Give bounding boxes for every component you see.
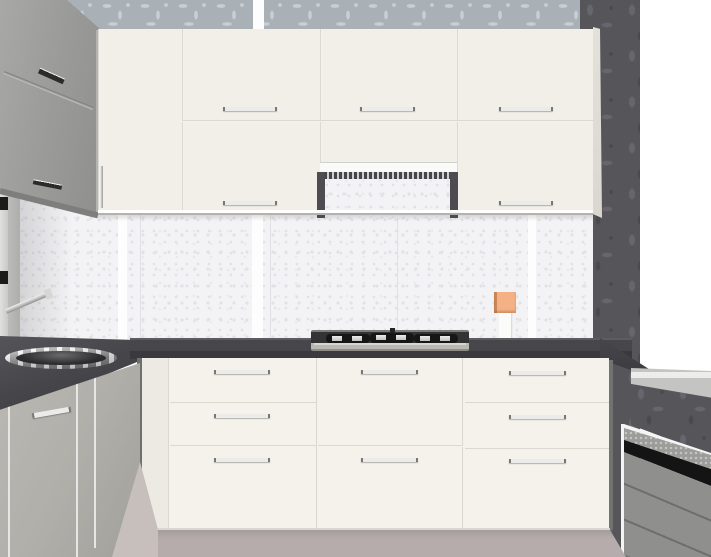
drawer-divider (318, 445, 463, 447)
sink-basin (16, 351, 106, 365)
tile-joint (252, 215, 263, 341)
upper-door-divider (182, 120, 593, 122)
burner-cap (332, 336, 342, 341)
burner-cap (440, 336, 450, 341)
hinge (0, 271, 8, 284)
tile-joint (528, 215, 536, 341)
upper-door-handle[interactable] (499, 107, 553, 111)
drawer-handle[interactable] (214, 370, 270, 374)
kitchen-3d-viewport[interactable] (0, 0, 711, 557)
base-unit-gap (316, 358, 318, 530)
drawer-handle[interactable] (509, 459, 566, 463)
burner-cap (376, 335, 386, 340)
base-unit-b[interactable] (316, 358, 463, 530)
burner-cap (396, 335, 406, 340)
upper-door-handle[interactable] (223, 107, 277, 111)
tile-line (140, 215, 141, 341)
tile-line (270, 215, 271, 341)
upper-door-handle[interactable] (360, 107, 415, 111)
base-unit-gap (168, 358, 170, 530)
base-unit-c[interactable] (463, 358, 609, 530)
floor (158, 530, 626, 557)
drawer-divider (170, 445, 316, 447)
drawer-handle[interactable] (509, 371, 566, 375)
hinge (0, 197, 8, 210)
base-unit-a[interactable] (168, 358, 316, 530)
left-base-door-gap (8, 402, 10, 557)
base-unit-gap (462, 358, 464, 530)
upper-door-handle[interactable] (223, 201, 277, 205)
drawer-handle[interactable] (214, 458, 270, 462)
hood-vent-grille (322, 172, 455, 179)
drawer-divider (465, 402, 609, 404)
base-run-bottom-line (140, 528, 610, 530)
upper-door-handle[interactable] (499, 201, 553, 205)
tile-line (397, 218, 398, 341)
hob-edge-highlight (314, 343, 466, 345)
tall-door-handle[interactable] (100, 166, 103, 208)
drawer-handle[interactable] (214, 414, 270, 418)
left-base-door-gap (76, 382, 78, 557)
burner-cap (352, 336, 362, 341)
drawer-handle[interactable] (361, 370, 418, 374)
wallpaper-band (60, 0, 580, 30)
base-run-right-side (609, 360, 613, 530)
canister-stand (499, 311, 511, 339)
drawer-handle[interactable] (509, 415, 566, 419)
radiator-left-edge (621, 424, 624, 557)
drawer-divider (465, 448, 609, 450)
drawer-divider (170, 402, 316, 404)
orange-canister[interactable] (494, 292, 516, 313)
upper-door-gap (182, 29, 184, 215)
drawer-handle[interactable] (361, 458, 418, 462)
void-corner (640, 0, 711, 370)
burner-cap (420, 336, 430, 341)
splashback-left-shade (20, 196, 95, 344)
left-base-handle[interactable] (32, 407, 71, 419)
left-base-door-gap (94, 376, 96, 548)
wallpaper-seam (253, 0, 264, 30)
under-cabinet-shadow (98, 215, 593, 221)
tile-joint (118, 215, 127, 341)
upper-door-gap (320, 29, 322, 172)
